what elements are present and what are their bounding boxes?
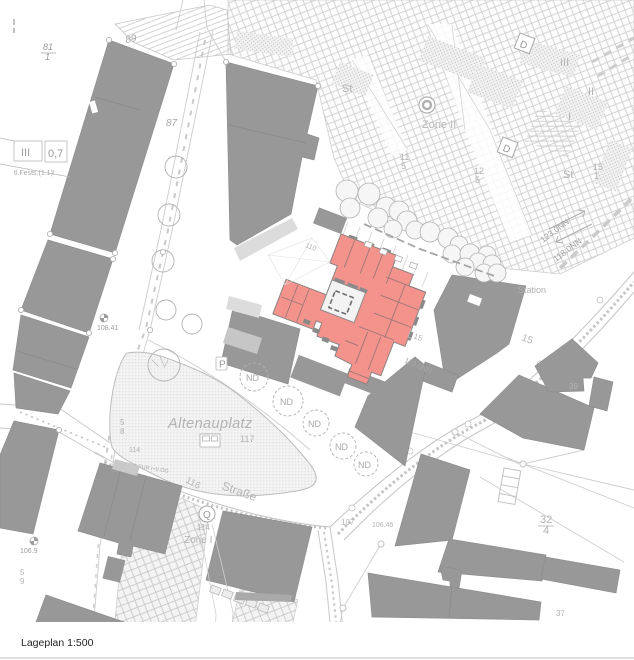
svg-text:Zone II: Zone II [422, 119, 456, 131]
svg-text:ND: ND [335, 442, 348, 452]
svg-text:87: 87 [166, 118, 178, 129]
svg-text:Altenauplatz: Altenauplatz [167, 416, 253, 432]
svg-text:St: St [342, 83, 352, 95]
svg-text:108.41: 108.41 [97, 325, 119, 332]
svg-text:ND: ND [246, 373, 259, 383]
svg-text:0,7: 0,7 [48, 148, 63, 160]
svg-text:Station: Station [518, 285, 546, 295]
svg-text:9: 9 [20, 577, 25, 586]
svg-text:1: 1 [45, 52, 50, 62]
svg-text:117: 117 [240, 434, 254, 444]
svg-text:4: 4 [543, 525, 549, 537]
svg-text:III: III [560, 57, 569, 69]
svg-text:106.45: 106.45 [372, 522, 394, 529]
svg-text:P: P [219, 360, 226, 371]
svg-text:tl.Fests.(1.1)!: tl.Fests.(1.1)! [14, 170, 55, 177]
svg-text:81: 81 [43, 42, 53, 52]
svg-text:5: 5 [120, 418, 125, 427]
svg-text:5: 5 [20, 568, 25, 577]
svg-text:39: 39 [569, 382, 578, 391]
svg-text:5: 5 [475, 175, 480, 185]
svg-text:1: 1 [594, 171, 599, 181]
svg-text:Q: Q [203, 510, 211, 521]
svg-text:5: 5 [401, 161, 406, 171]
svg-text:I: I [568, 111, 571, 123]
svg-text:ND: ND [308, 419, 321, 429]
svg-text:St: St [563, 169, 573, 181]
svg-text:107: 107 [341, 518, 355, 527]
svg-text:ND: ND [358, 460, 371, 470]
svg-text:114: 114 [129, 447, 140, 454]
svg-text:Zone I: Zone I [184, 535, 212, 546]
svg-text:II: II [588, 86, 594, 98]
svg-text:8: 8 [120, 427, 125, 436]
svg-text:37: 37 [556, 609, 565, 618]
svg-text:114: 114 [197, 523, 210, 532]
svg-text:III: III [21, 147, 30, 159]
svg-text:ND: ND [280, 397, 293, 407]
svg-text:106.9: 106.9 [20, 548, 38, 555]
svg-text:Lageplan 1:500: Lageplan 1:500 [21, 637, 94, 649]
